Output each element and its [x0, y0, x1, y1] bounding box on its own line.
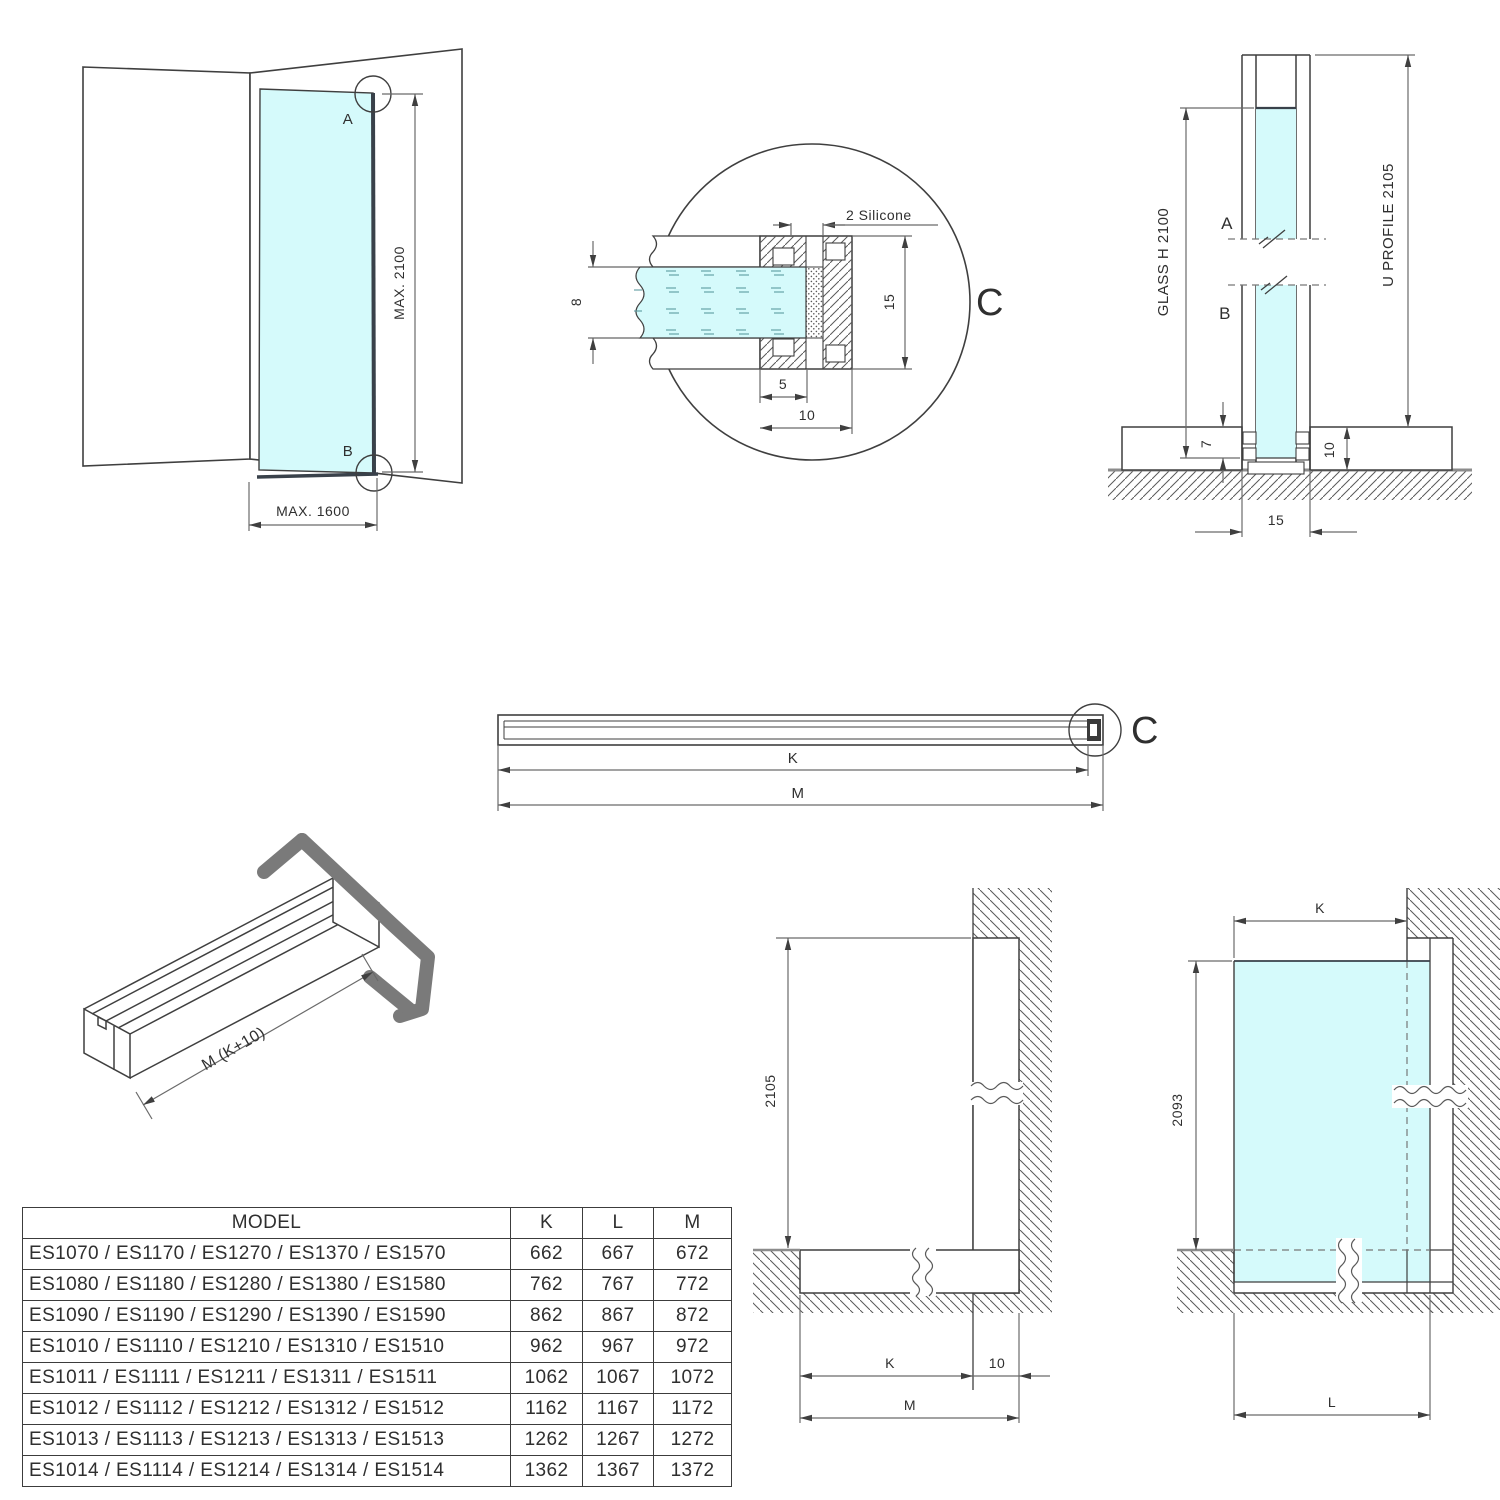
section-a-label: A — [1221, 214, 1233, 233]
table-row: ES1014 / ES1114 / ES1214 / ES1314 / ES15… — [23, 1456, 732, 1487]
header-k: K — [511, 1208, 583, 1239]
max-height-dim: MAX. 2100 — [391, 246, 407, 320]
m-cell: 872 — [654, 1301, 732, 1332]
k-dim-label: K — [1315, 900, 1325, 916]
technical-drawing-sheet: A B MAX. 2100 MAX. 1600 — [0, 0, 1500, 1500]
model-cell: ES1014 / ES1114 / ES1214 / ES1314 / ES15… — [23, 1456, 511, 1487]
table-header-row: MODEL K L M — [23, 1208, 732, 1239]
glass-panel — [257, 89, 378, 477]
l-cell: 1267 — [583, 1425, 654, 1456]
table-row: ES1011 / ES1111 / ES1211 / ES1311 / ES15… — [23, 1363, 732, 1394]
glass-height-dim: GLASS H 2100 — [1155, 208, 1172, 317]
model-cell: ES1090 / ES1190 / ES1290 / ES1390 / ES15… — [23, 1301, 511, 1332]
model-cell: ES1011 / ES1111 / ES1211 / ES1311 / ES15… — [23, 1363, 511, 1394]
profile-3d-view: M (K+10) — [40, 810, 460, 1140]
l-cell: 1367 — [583, 1456, 654, 1487]
glass-column — [1256, 108, 1296, 458]
header-l: L — [583, 1208, 654, 1239]
corner-perspective-view: A B MAX. 2100 MAX. 1600 — [30, 20, 510, 600]
table-row: ES1080 / ES1180 / ES1280 / ES1380 / ES15… — [23, 1270, 732, 1301]
glass-panel — [1234, 961, 1430, 1282]
m-dim-label: M — [904, 1397, 916, 1413]
max-width-dim: MAX. 1600 — [276, 503, 350, 519]
detail-c-letter: C — [1131, 710, 1159, 752]
m-cell: 1072 — [654, 1363, 732, 1394]
m-dim-label: M — [792, 785, 805, 802]
base-height-dim: 10 — [1321, 442, 1337, 459]
k-dim-label: K — [885, 1355, 895, 1371]
glass-section — [588, 267, 806, 338]
detail-c-letter: C — [976, 282, 1004, 324]
model-dimension-table: MODEL K L M ES1070 / ES1170 / ES1270 / E… — [22, 1207, 732, 1487]
profile-height-dim: 2105 — [762, 1074, 778, 1107]
model-cell: ES1013 / ES1113 / ES1213 / ES1313 / ES15… — [23, 1425, 511, 1456]
k-cell: 1062 — [511, 1363, 583, 1394]
m-cell: 1272 — [654, 1425, 732, 1456]
k-cell: 762 — [511, 1270, 583, 1301]
l-cell: 867 — [583, 1301, 654, 1332]
profile-height-dim: 15 — [881, 294, 897, 311]
model-cell: ES1012 / ES1112 / ES1212 / ES1312 / ES15… — [23, 1394, 511, 1425]
header-m: M — [654, 1208, 732, 1239]
table-row: ES1012 / ES1112 / ES1212 / ES1312 / ES15… — [23, 1394, 732, 1425]
vertical-section-view: A B GLASS H 2100 U PROFILE 2105 7 10 15 — [1080, 20, 1500, 600]
profile-length-dim: M (K+10) — [199, 1024, 268, 1074]
inner-depth-dim: 5 — [779, 376, 787, 392]
k-cell: 862 — [511, 1301, 583, 1332]
l-cell: 667 — [583, 1239, 654, 1270]
m-cell: 1172 — [654, 1394, 732, 1425]
glass-elevation-view: K 2093 L — [1130, 870, 1500, 1430]
base-width-dim: 15 — [1268, 512, 1285, 528]
k-cell: 962 — [511, 1332, 583, 1363]
detail-b-label: B — [343, 443, 354, 460]
header-model: MODEL — [23, 1208, 511, 1239]
glass-inset-dim: 7 — [1198, 440, 1214, 448]
glass-thickness-dim: 8 — [568, 298, 584, 306]
l-cell: 767 — [583, 1270, 654, 1301]
l-cell: 967 — [583, 1332, 654, 1363]
k-cell: 1162 — [511, 1394, 583, 1425]
k-dim-label: K — [788, 750, 799, 767]
table-row: ES1070 / ES1170 / ES1270 / ES1370 / ES15… — [23, 1239, 732, 1270]
m-cell: 772 — [654, 1270, 732, 1301]
profiles — [800, 938, 1019, 1293]
profile-elevation-view: 2105 K 10 M — [740, 870, 1070, 1430]
table-row: ES1010 / ES1110 / ES1210 / ES1310 / ES15… — [23, 1332, 732, 1363]
model-cell: ES1010 / ES1110 / ES1210 / ES1310 / ES15… — [23, 1332, 511, 1363]
m-cell: 672 — [654, 1239, 732, 1270]
silicone-joint — [806, 267, 823, 338]
model-cell: ES1070 / ES1170 / ES1270 / ES1370 / ES15… — [23, 1239, 511, 1270]
depth-dim: 10 — [799, 407, 816, 423]
break-lines — [1228, 230, 1326, 294]
k-cell: 1362 — [511, 1456, 583, 1487]
l-cell: 1067 — [583, 1363, 654, 1394]
profile-bar — [498, 715, 1103, 745]
offset-dim-label: 10 — [989, 1355, 1006, 1371]
u-profile-dim: U PROFILE 2105 — [1380, 163, 1397, 287]
l-cell: 1167 — [583, 1394, 654, 1425]
m-cell: 1372 — [654, 1456, 732, 1487]
k-cell: 1262 — [511, 1425, 583, 1456]
m-cell: 972 — [654, 1332, 732, 1363]
k-cell: 662 — [511, 1239, 583, 1270]
model-cell: ES1080 / ES1180 / ES1280 / ES1380 / ES15… — [23, 1270, 511, 1301]
silicone-callout: 2 Silicone — [846, 207, 912, 223]
l-dim-label: L — [1328, 1394, 1336, 1410]
detail-c-view: 8 15 5 10 2 Silicone C — [560, 110, 1040, 590]
detail-a-label: A — [343, 111, 354, 128]
glass-height-dim: 2093 — [1169, 1093, 1185, 1126]
table-row: ES1013 / ES1113 / ES1213 / ES1313 / ES15… — [23, 1425, 732, 1456]
table-row: ES1090 / ES1190 / ES1290 / ES1390 / ES15… — [23, 1301, 732, 1332]
profile-bar-view: K M C — [490, 680, 1190, 840]
section-b-label: B — [1219, 304, 1231, 323]
